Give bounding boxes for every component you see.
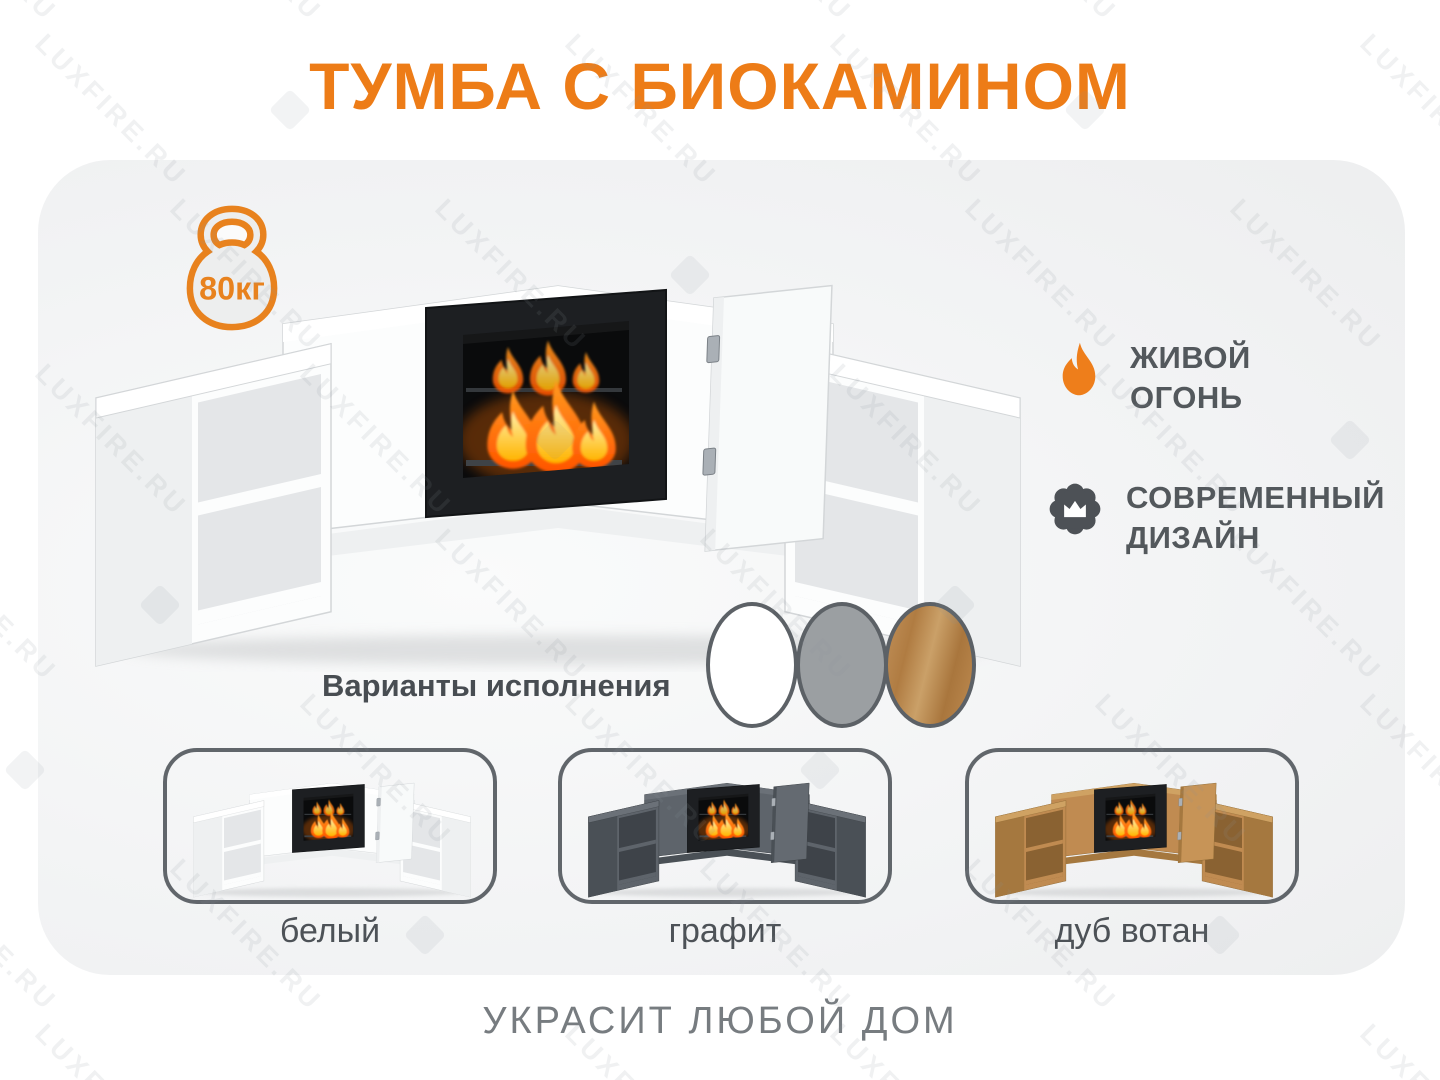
feature-line: СОВРЕМЕННЫЙ: [1126, 478, 1385, 518]
variant-image-white: [188, 758, 476, 899]
watermark-text: LUXFIRE.RU: [0, 0, 63, 28]
color-swatch-graphite: [796, 602, 888, 728]
variants-title: Варианты исполнения: [322, 668, 671, 704]
variant-label-white: белый: [163, 912, 497, 951]
variant-card-graphite: [558, 748, 892, 904]
feature-line: ДИЗАЙН: [1126, 518, 1385, 558]
feature-live-fire: ЖИВОЙ ОГОНЬ: [1050, 338, 1251, 417]
watermark-text: LUXFIRE.RU: [694, 0, 859, 28]
color-swatch-oak: [884, 602, 976, 728]
feature-modern-design: СОВРЕМЕННЫЙ ДИЗАЙН: [1046, 478, 1385, 557]
flame-icon: [1050, 340, 1108, 398]
feature-line: ОГОНЬ: [1130, 378, 1251, 418]
color-swatch-white: [706, 602, 798, 728]
feature-label: СОВРЕМЕННЫЙ ДИЗАЙН: [1126, 478, 1385, 557]
main-product-image: [78, 202, 1038, 672]
product-photo-card: 80кг ЖИВОЙ ОГОНЬ СОВРЕМЕННЫЙ ДИЗАЙН Вари…: [38, 160, 1405, 975]
watermark-text: LUXFIRE.RU: [164, 0, 329, 28]
variant-image-graphite: [583, 758, 871, 899]
variant-card-white: [163, 748, 497, 904]
slogan: УКРАСИТ ЛЮБОЙ ДОМ: [0, 1000, 1440, 1043]
variant-card-oak: [965, 748, 1299, 904]
feature-line: ЖИВОЙ: [1130, 338, 1251, 378]
variant-label-graphite: графит: [558, 912, 892, 951]
seal-icon: [1046, 480, 1104, 538]
feature-label: ЖИВОЙ ОГОНЬ: [1130, 338, 1251, 417]
variant-image-oak: [990, 758, 1278, 899]
watermark-text: LUXFIRE.RU: [959, 0, 1124, 28]
promo-banner: LUXFIRE.RULUXFIRE.RULUXFIRE.RULUXFIRE.RU…: [0, 0, 1440, 1080]
page-title: ТУМБА С БИОКАМИНОМ: [0, 48, 1440, 124]
variant-label-oak: дуб вотан: [965, 912, 1299, 951]
